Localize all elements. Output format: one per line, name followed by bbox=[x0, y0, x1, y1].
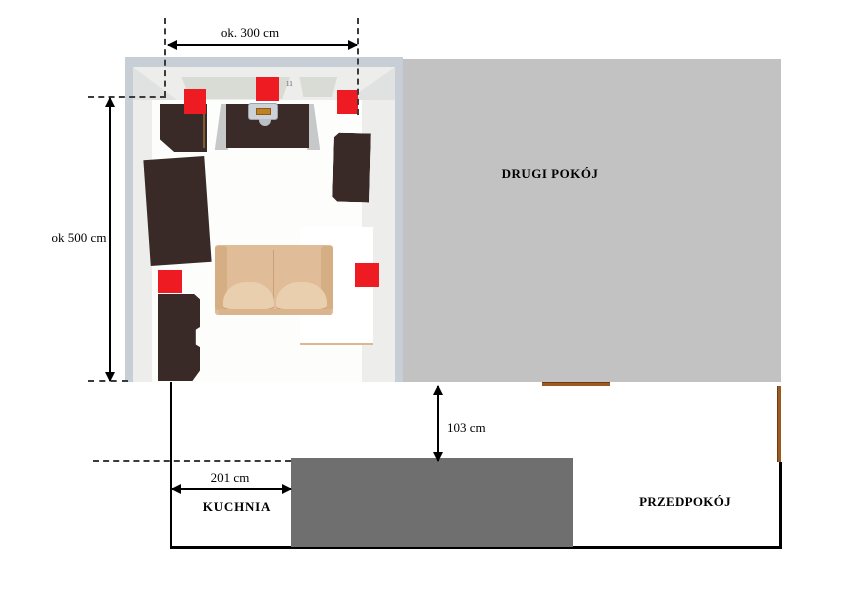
niche-mark-label: 11 bbox=[286, 80, 298, 88]
sofa-cushion-right bbox=[276, 282, 327, 311]
dimension-label-room-height: ok 500 cm bbox=[44, 230, 114, 246]
kitchen-label: KUCHNIA bbox=[187, 499, 287, 515]
hallway-right-wall bbox=[779, 462, 782, 548]
wardrobe-left-tall bbox=[143, 156, 211, 266]
dimension-label-kitchen-width: 201 cm bbox=[180, 470, 280, 486]
kitchen-left-wall bbox=[170, 382, 172, 548]
door-second-room-bottom bbox=[542, 382, 610, 386]
red-marker-rear-left bbox=[158, 270, 182, 293]
floor-plan-canvas: DRUGI POKÓJ 11 ok. 300 cm ok 5 bbox=[0, 0, 866, 590]
dashed-line-left-upper bbox=[88, 96, 166, 98]
door-hallway-right bbox=[777, 386, 781, 462]
second-room-area bbox=[403, 59, 781, 382]
sofa-cushion-left bbox=[223, 282, 274, 311]
dashed-line-kitchen bbox=[93, 460, 291, 462]
wardrobe-left-lower bbox=[158, 294, 200, 381]
window-niche-small bbox=[297, 77, 337, 97]
sofa-base bbox=[219, 309, 331, 315]
hallway-label: PRZEDPOKÓJ bbox=[624, 494, 746, 510]
dimension-arrow-counter-gap bbox=[437, 386, 439, 461]
second-room-label: DRUGI POKÓJ bbox=[460, 166, 640, 182]
red-marker-front-left bbox=[184, 89, 206, 114]
dashed-line-top-left bbox=[164, 18, 166, 97]
red-marker-front-right bbox=[337, 90, 358, 114]
dimension-arrow-kitchen-width bbox=[172, 488, 291, 490]
red-marker-front-center bbox=[256, 77, 279, 101]
dimension-label-room-width: ok. 300 cm bbox=[200, 25, 300, 41]
cabinet-right bbox=[332, 133, 371, 203]
dashed-line-top-right bbox=[357, 18, 359, 115]
red-marker-rear-right bbox=[355, 263, 379, 287]
kitchen-counter-block bbox=[291, 458, 573, 547]
dimension-arrow-room-width bbox=[168, 44, 357, 46]
dimension-label-counter-gap: 103 cm bbox=[447, 420, 486, 436]
tv-screen-icon bbox=[256, 108, 271, 115]
